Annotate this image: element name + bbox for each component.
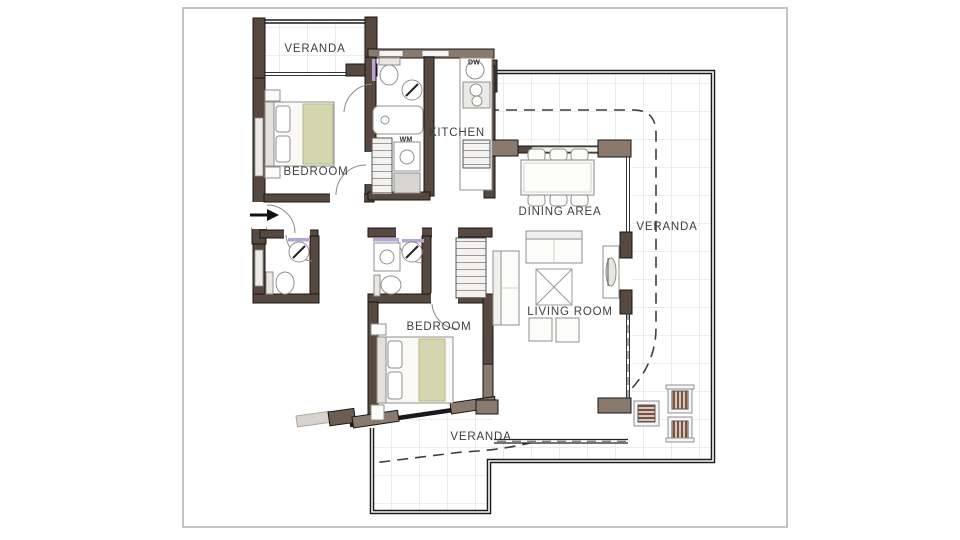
label-veranda-right: VERANDA [636, 221, 697, 233]
dining-set [521, 149, 594, 206]
label-bedroom-1: BEDROOM [283, 166, 348, 178]
floor-plan-page: VERANDA KITCHEN BEDROOM DINING AREA VERA… [0, 0, 960, 540]
label-kitchen: KITCHEN [429, 127, 485, 139]
label-washing-machine: WM [400, 137, 413, 144]
bed-1 [265, 90, 334, 178]
wardrobe [456, 238, 486, 298]
laundry [372, 138, 420, 194]
label-veranda-top: VERANDA [284, 43, 345, 55]
kitchen-counter [460, 58, 492, 190]
floor-plan-drawing [0, 0, 960, 540]
outdoor-chair [666, 417, 694, 442]
outdoor-table [634, 401, 659, 426]
label-bedroom-2: BEDROOM [406, 321, 471, 333]
label-veranda-bottom: VERANDA [450, 431, 511, 443]
label-dishwasher: DW [468, 60, 480, 67]
outdoor-chair [666, 385, 694, 413]
tv-console [603, 246, 619, 298]
label-dining-area: DINING AREA [519, 206, 602, 218]
label-living-room: LIVING ROOM [527, 306, 612, 318]
